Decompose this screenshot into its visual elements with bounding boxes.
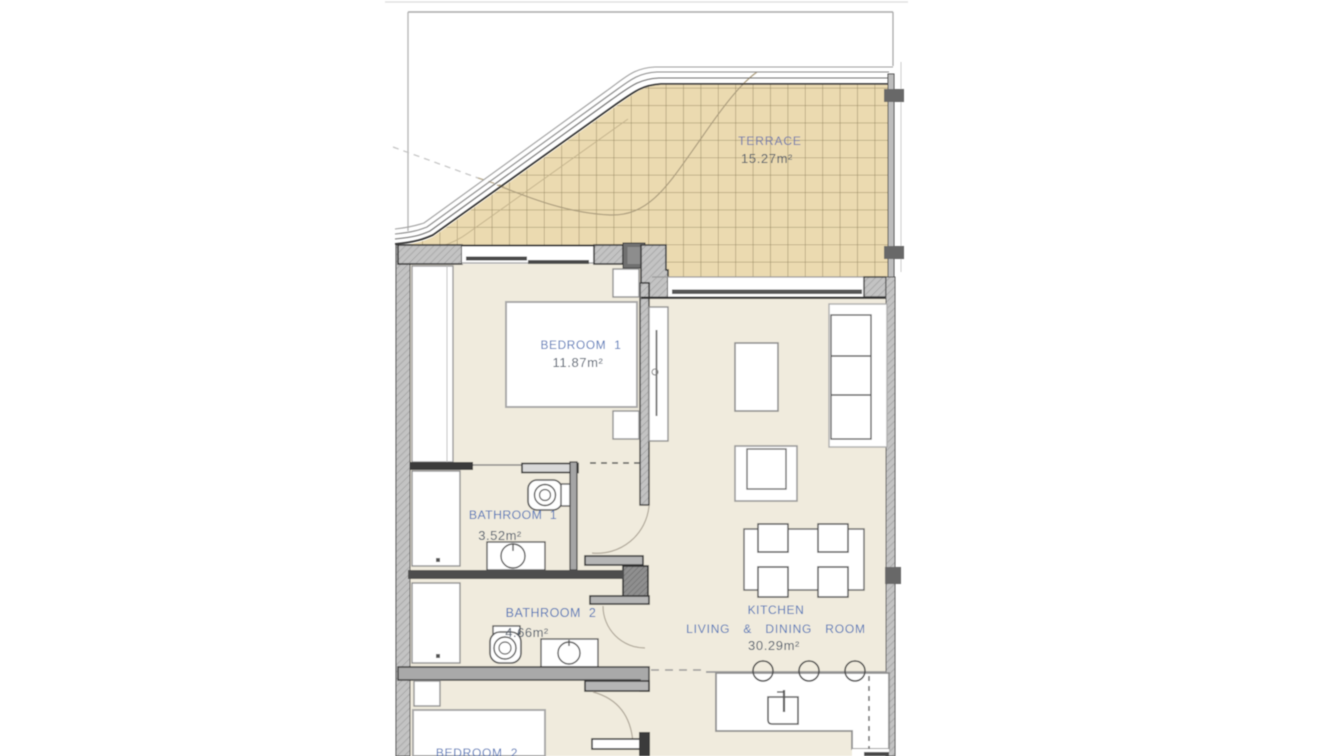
svg-text:BEDROOM 2: BEDROOM 2 bbox=[436, 746, 518, 756]
svg-text:BEDROOM 1: BEDROOM 1 bbox=[540, 338, 621, 352]
svg-text:11.87m²: 11.87m² bbox=[553, 355, 604, 370]
svg-text:4.66m²: 4.66m² bbox=[505, 625, 549, 640]
svg-text:15.27m²: 15.27m² bbox=[741, 151, 793, 166]
svg-text:30.29m²: 30.29m² bbox=[748, 638, 800, 653]
svg-text:3.52m²: 3.52m² bbox=[478, 528, 522, 543]
svg-text:BATHROOM 2: BATHROOM 2 bbox=[506, 606, 597, 620]
svg-text:TERRACE: TERRACE bbox=[738, 134, 802, 148]
svg-text:KITCHEN: KITCHEN bbox=[748, 603, 805, 617]
svg-text:BATHROOM 1: BATHROOM 1 bbox=[469, 508, 557, 522]
svg-text:LIVING & DINING ROOM: LIVING & DINING ROOM bbox=[686, 622, 866, 636]
